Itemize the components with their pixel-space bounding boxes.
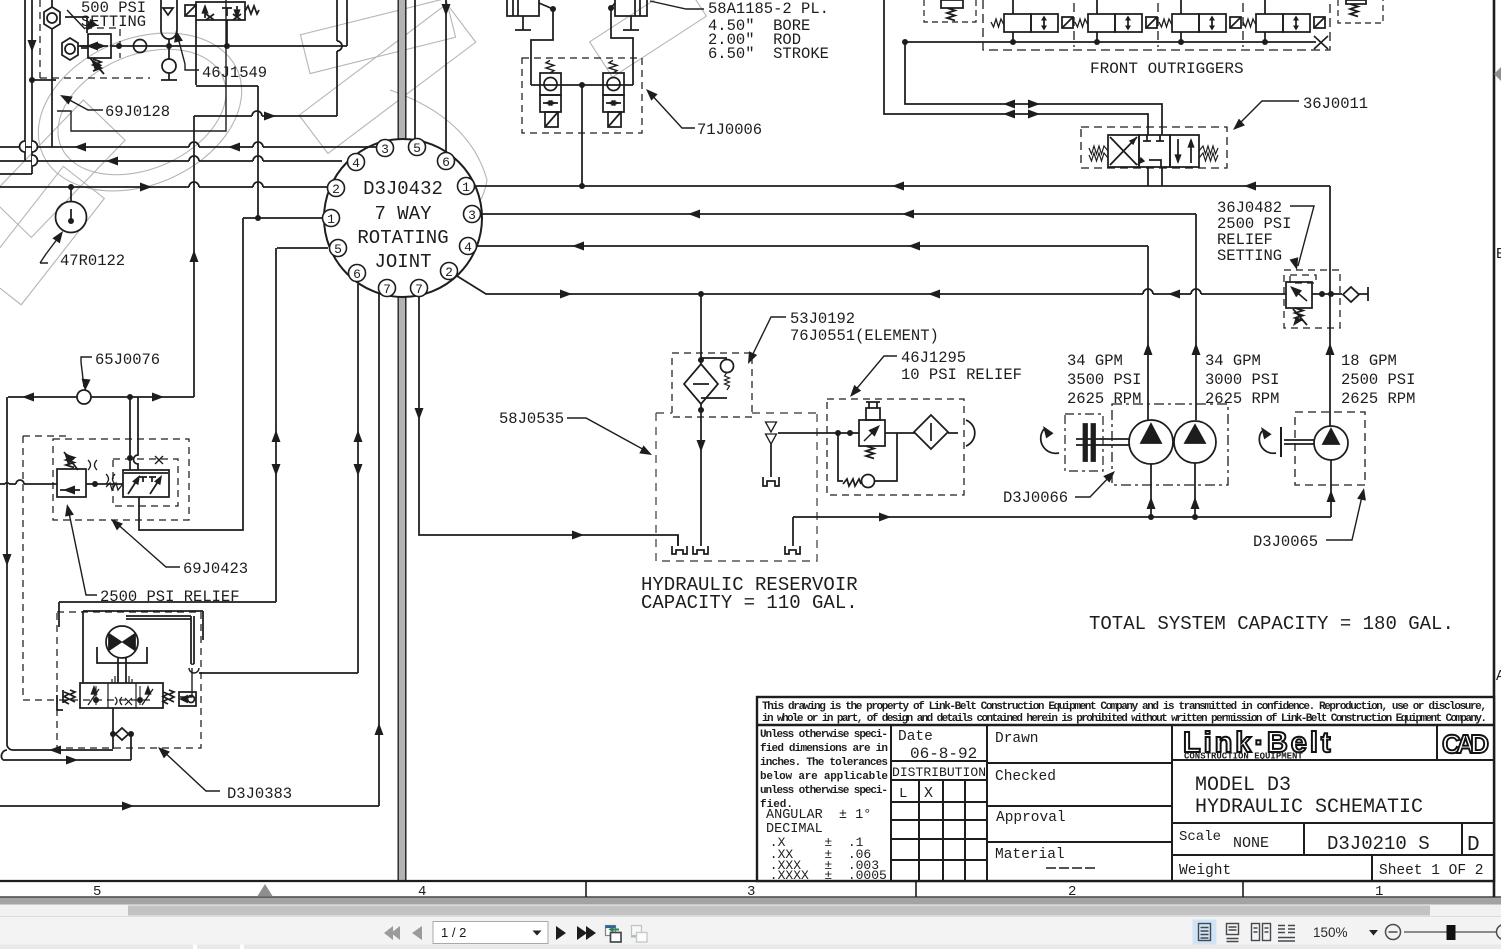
svg-text:MODEL D3: MODEL D3 xyxy=(1195,774,1291,797)
svg-text:2500 PSI RELIEF: 2500 PSI RELIEF xyxy=(100,588,240,606)
svg-text:3: 3 xyxy=(468,208,476,223)
svg-text:Sheet 1 OF 2: Sheet 1 OF 2 xyxy=(1379,863,1483,879)
svg-text:D: D xyxy=(1467,834,1480,857)
svg-text:46J1549: 46J1549 xyxy=(202,64,267,82)
svg-text:34 GPM: 34 GPM xyxy=(1067,352,1123,370)
svg-text:This drawing is the property o: This drawing is the property of Link-Bel… xyxy=(762,701,1487,713)
svg-text:2500 PSI: 2500 PSI xyxy=(1341,371,1415,389)
svg-text:6: 6 xyxy=(353,267,361,282)
svg-text:B: B xyxy=(1496,246,1501,263)
svg-text:fied dimensions are in: fied dimensions are in xyxy=(760,743,888,755)
svg-text:06-8-92: 06-8-92 xyxy=(910,745,977,763)
svg-text:1: 1 xyxy=(327,212,335,227)
svg-text:58A1185-2 PL.: 58A1185-2 PL. xyxy=(708,0,829,18)
svg-text:2625 RPM: 2625 RPM xyxy=(1341,390,1415,408)
svg-text:X: X xyxy=(924,785,933,802)
svg-text:A: A xyxy=(1496,668,1501,685)
svg-text:.XXXX ± .0005: .XXXX ± .0005 xyxy=(762,868,887,883)
svg-text:Date: Date xyxy=(898,729,933,745)
svg-text:unless otherwise speci-: unless otherwise speci- xyxy=(760,785,888,797)
svg-text:69J0423: 69J0423 xyxy=(183,560,248,578)
svg-text:ANGULAR ± 1°: ANGULAR ± 1° xyxy=(766,808,871,823)
svg-text:5: 5 xyxy=(334,242,342,257)
svg-text:150%: 150% xyxy=(1313,925,1348,940)
svg-text:CONSTRUCTION EQUIPMENT: CONSTRUCTION EQUIPMENT xyxy=(1184,752,1303,762)
svg-text:1: 1 xyxy=(462,180,470,195)
svg-text:4: 4 xyxy=(464,240,472,255)
svg-text:5: 5 xyxy=(413,141,421,156)
svg-text:SETTING: SETTING xyxy=(1217,247,1282,265)
svg-text:53J0192: 53J0192 xyxy=(790,310,855,328)
svg-text:HYDRAULIC SCHEMATIC: HYDRAULIC SCHEMATIC xyxy=(1195,796,1423,819)
svg-text:2: 2 xyxy=(445,265,453,280)
svg-text:inches. The tolerances: inches. The tolerances xyxy=(760,757,888,769)
svg-text:7: 7 xyxy=(415,282,423,297)
svg-text:D3J0383: D3J0383 xyxy=(227,785,292,803)
svg-text:2625 RPM: 2625 RPM xyxy=(1067,390,1141,408)
svg-text:D3J0065: D3J0065 xyxy=(1253,533,1318,551)
svg-text:DISTRIBUTION: DISTRIBUTION xyxy=(892,765,986,780)
svg-text:2625 RPM: 2625 RPM xyxy=(1205,390,1279,408)
svg-text:65J0076: 65J0076 xyxy=(95,351,160,369)
svg-text:Checked: Checked xyxy=(995,769,1056,785)
svg-text:58J0535: 58J0535 xyxy=(499,410,564,428)
svg-text:69J0128: 69J0128 xyxy=(105,103,170,121)
svg-text:36J0011: 36J0011 xyxy=(1303,95,1368,113)
svg-text:1 / 2: 1 / 2 xyxy=(441,925,466,940)
svg-text:CAPACITY = 110 GAL.: CAPACITY = 110 GAL. xyxy=(641,592,858,614)
svg-text:18 GPM: 18 GPM xyxy=(1341,352,1397,370)
svg-text:L: L xyxy=(899,786,907,802)
svg-text:7 WAY: 7 WAY xyxy=(374,203,432,225)
svg-text:2: 2 xyxy=(332,182,340,197)
svg-text:Material: Material xyxy=(995,847,1065,863)
svg-text:4: 4 xyxy=(352,156,360,171)
svg-text:47R0122: 47R0122 xyxy=(60,252,125,270)
svg-text:JOINT: JOINT xyxy=(374,251,431,273)
svg-text:3000 PSI: 3000 PSI xyxy=(1205,371,1279,389)
svg-text:71J0006: 71J0006 xyxy=(697,121,762,139)
svg-text:6: 6 xyxy=(442,155,450,170)
svg-text:Weight: Weight xyxy=(1179,863,1231,879)
svg-text:3500 PSI: 3500 PSI xyxy=(1067,371,1141,389)
svg-text:Scale: Scale xyxy=(1179,829,1221,845)
svg-text:76J0551(ELEMENT): 76J0551(ELEMENT) xyxy=(790,327,939,345)
svg-text:10 PSI RELIEF: 10 PSI RELIEF xyxy=(901,366,1022,384)
svg-text:in whole or in part, of design: in whole or in part, of design and detai… xyxy=(762,713,1487,725)
svg-text:below are applicable: below are applicable xyxy=(760,771,888,783)
svg-text:3: 3 xyxy=(381,142,389,157)
svg-text:Drawn: Drawn xyxy=(995,731,1039,747)
svg-text:46J1295: 46J1295 xyxy=(901,349,966,367)
svg-text:ROTATING: ROTATING xyxy=(357,227,448,249)
svg-text:CAD: CAD xyxy=(1442,729,1489,759)
svg-text:D3J0066: D3J0066 xyxy=(1003,489,1068,507)
svg-text:34 GPM: 34 GPM xyxy=(1205,352,1261,370)
svg-text:TOTAL SYSTEM CAPACITY = 180 GA: TOTAL SYSTEM CAPACITY = 180 GAL. xyxy=(1089,613,1454,635)
svg-text:FRONT OUTRIGGERS: FRONT OUTRIGGERS xyxy=(1090,60,1244,78)
svg-text:Approval: Approval xyxy=(996,810,1066,826)
svg-text:6.50" STROKE: 6.50" STROKE xyxy=(708,45,829,63)
svg-text:Unless otherwise speci-: Unless otherwise speci- xyxy=(760,729,888,741)
svg-text:D3J0432: D3J0432 xyxy=(363,178,443,200)
svg-text:NONE: NONE xyxy=(1233,835,1269,852)
svg-text:D3J0210 S: D3J0210 S xyxy=(1327,833,1430,855)
svg-text:7: 7 xyxy=(383,282,391,297)
